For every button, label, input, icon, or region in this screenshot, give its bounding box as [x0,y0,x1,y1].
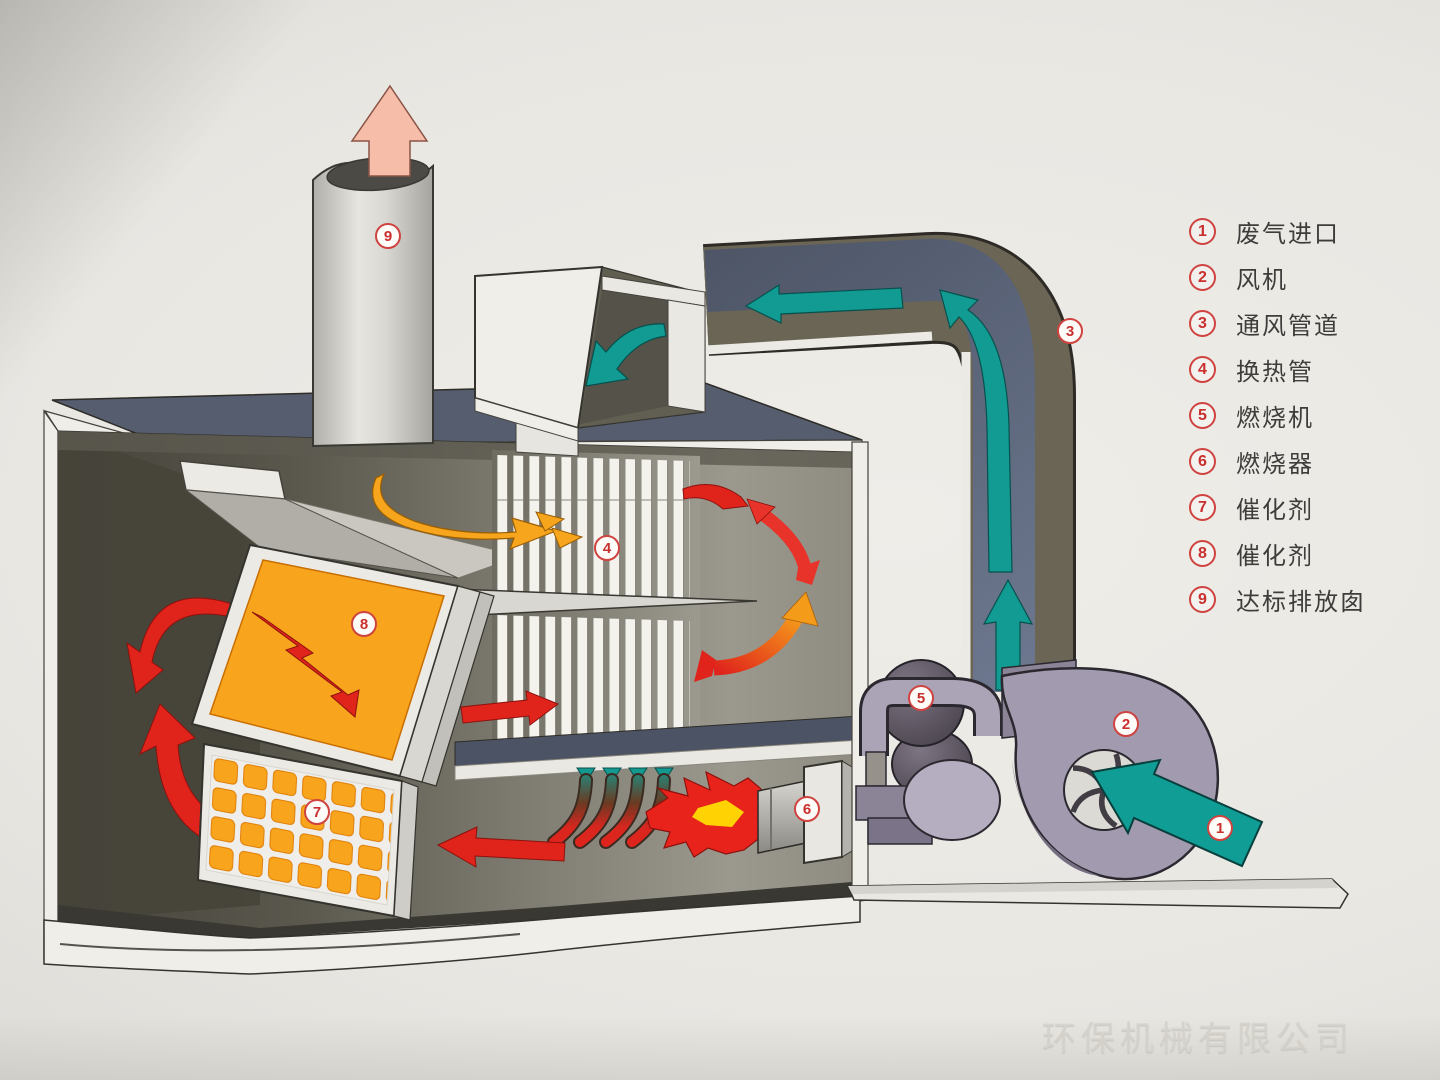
legend-item: 6 燃烧器 [1189,448,1366,475]
legend-num-icon: 4 [1189,356,1216,383]
legend-item: 2 风机 [1189,264,1366,291]
chimney [313,86,433,446]
legend-num-icon: 1 [1189,218,1216,245]
watermark: 环保机械有限公司 [1042,1011,1354,1060]
legend-item: 5 燃烧机 [1189,402,1366,429]
legend-num-icon: 5 [1189,402,1216,429]
callout-5: 5 [908,685,934,711]
legend-num-icon: 8 [1189,540,1216,567]
legend-item: 7 催化剂 [1189,494,1366,521]
callout-2: 2 [1113,711,1139,737]
callout-9: 9 [375,223,401,249]
legend-num-icon: 7 [1189,494,1216,521]
right-wall-band [852,442,868,902]
legend-item: 9 达标排放囱 [1189,586,1366,613]
legend-item: 4 换热管 [1189,356,1366,383]
callout-3: 3 [1057,318,1083,344]
legend-num-icon: 6 [1189,448,1216,475]
callout-4: 4 [594,535,620,561]
page: 1 2 3 4 5 6 7 8 9 1 废气进口 2 风机 3 通风管道 4 换… [0,0,1440,1080]
legend-num-icon: 9 [1189,586,1216,613]
legend-item: 8 催化剂 [1189,540,1366,567]
left-edge-band [44,411,58,958]
legend-num-icon: 3 [1189,310,1216,337]
platform [848,879,1348,908]
legend-item: 1 废气进口 [1189,218,1366,245]
callout-6: 6 [794,796,820,822]
legend-num-icon: 2 [1189,264,1216,291]
callout-1: 1 [1207,815,1233,841]
callout-7: 7 [304,799,330,825]
callout-8: 8 [351,611,377,637]
legend-item: 3 通风管道 [1189,310,1366,337]
legend: 1 废气进口 2 风机 3 通风管道 4 换热管 5 燃烧机 6 燃烧器 7 催… [1189,218,1366,632]
